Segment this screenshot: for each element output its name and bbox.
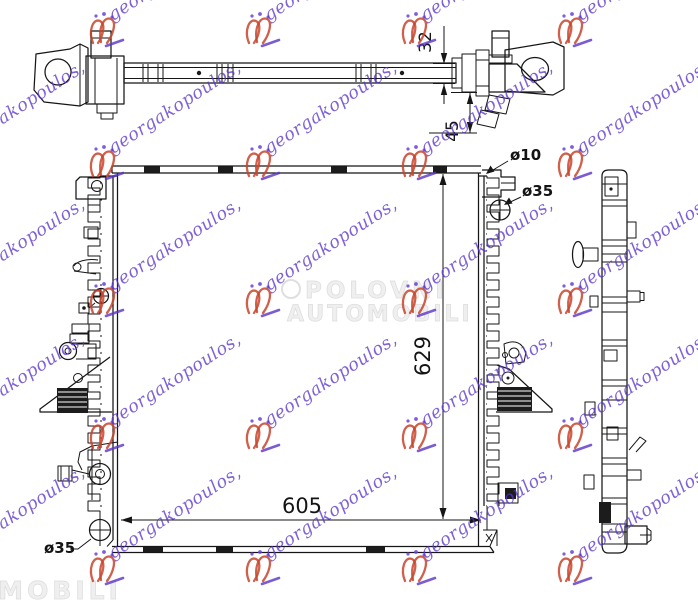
dim-label-o10: ø10 <box>510 146 541 164</box>
marketplace-watermark-line2: AUTOMOBILI <box>287 302 473 327</box>
svg-text:georgakopoulos,: georgakopoulos, <box>573 463 698 564</box>
crossmember-bar <box>124 63 456 83</box>
watermark-georgakopoulos: georgakopoulos, <box>559 463 698 584</box>
right-pipe <box>492 31 509 57</box>
svg-text:georgakopoulos,: georgakopoulos, <box>261 330 401 431</box>
watermark-georgakopoulos: georgakopoulos, <box>559 0 698 46</box>
watermark-georgakopoulos: georgakopoulos, <box>91 58 245 179</box>
svg-text:georgakopoulos,: georgakopoulos, <box>261 58 401 159</box>
svg-text:georgakopoulos,: georgakopoulos, <box>573 58 698 159</box>
watermark-georgakopoulos: georgakopoulos, <box>0 58 89 179</box>
watermark-georgakopoulos: georgakopoulos, <box>0 0 89 46</box>
watermark-georgakopoulos: georgakopoulos, <box>247 0 401 46</box>
radiator-technical-drawing: POLOVNI AUTOMOBILI AUTOMOBILI <box>0 0 698 600</box>
svg-text:georgakopoulos,: georgakopoulos, <box>105 58 245 159</box>
side-dark-insert <box>599 502 611 523</box>
svg-text:georgakopoulos,: georgakopoulos, <box>0 195 89 296</box>
watermark-georgakopoulos: georgakopoulos, <box>559 58 698 179</box>
svg-text:georgakopoulos,: georgakopoulos, <box>573 330 698 431</box>
watermark-georgakopoulos: georgakopoulos, <box>247 58 401 179</box>
bar-rivet-left <box>197 71 201 75</box>
radiator-front-view: 605 629 ø10 ø35 ø35 <box>40 146 553 557</box>
dimension-core-height: 629 <box>411 174 447 519</box>
watermark-georgakopoulos: georgakopoulos, <box>559 195 698 316</box>
side-upper-nipple <box>627 291 644 302</box>
radiator-side-view <box>573 170 652 553</box>
watermark-georgakopoulos: georgakopoulos, <box>559 330 698 451</box>
top-header <box>112 166 481 173</box>
side-lower-nipple <box>627 470 641 480</box>
side-hook <box>629 437 646 452</box>
watermark-georgakopoulos: georgakopoulos, <box>91 330 245 451</box>
svg-text:georgakopoulos,: georgakopoulos, <box>105 195 245 296</box>
marketplace-watermark-corner: AUTOMOBILI <box>0 576 122 600</box>
dim-label-o35-drain: ø35 <box>44 539 75 557</box>
dim-label-o35-filler: ø35 <box>522 182 553 200</box>
svg-text:georgakopoulos,: georgakopoulos, <box>573 0 698 25</box>
callout-bleed-hole: ø10 <box>486 146 541 174</box>
watermark-georgakopoulos: georgakopoulos, <box>0 195 89 316</box>
svg-text:georgakopoulos,: georgakopoulos, <box>261 0 401 25</box>
watermark-georgakopoulos: georgakopoulos, <box>403 463 557 584</box>
svg-text:georgakopoulos,: georgakopoulos, <box>105 330 245 431</box>
dim-label-629: 629 <box>411 336 435 376</box>
svg-text:georgakopoulos,: georgakopoulos, <box>417 58 557 159</box>
watermark-georgakopoulos: georgakopoulos, <box>91 0 245 46</box>
svg-text:georgakopoulos,: georgakopoulos, <box>105 0 245 25</box>
watermark-georgakopoulos: georgakopoulos, <box>247 330 401 451</box>
watermark-georgakopoulos: georgakopoulos, <box>247 463 401 584</box>
svg-text:georgakopoulos,: georgakopoulos, <box>417 0 557 25</box>
svg-text:georgakopoulos,: georgakopoulos, <box>0 0 89 25</box>
callout-drain-plug: ø35 <box>44 539 91 557</box>
drawing-canvas: POLOVNI AUTOMOBILI AUTOMOBILI <box>0 0 698 600</box>
watermark-georgakopoulos: georgakopoulos, <box>91 195 245 316</box>
watermark-georgakopoulos: georgakopoulos, <box>0 463 89 584</box>
watermark-georgakopoulos: georgakopoulos, <box>403 195 557 316</box>
svg-text:georgakopoulos,: georgakopoulos, <box>0 330 89 431</box>
watermark-georgakopoulos: georgakopoulos, <box>91 463 245 584</box>
svg-text:georgakopoulos,: georgakopoulos, <box>573 195 698 296</box>
